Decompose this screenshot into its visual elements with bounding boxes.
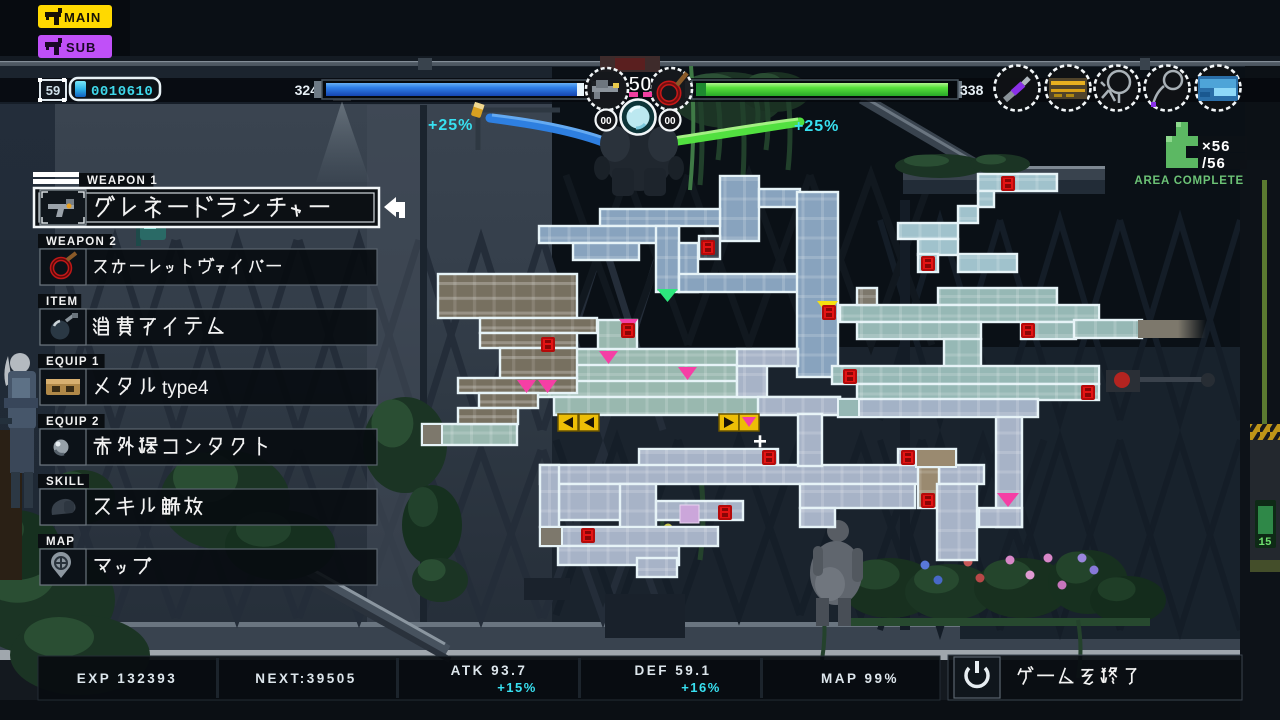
svg-text:WEAPON 1: WEAPON 1 — [87, 175, 158, 187]
svg-text:ITEM: ITEM — [46, 296, 78, 308]
svg-text:+15%: +15% — [497, 680, 537, 695]
svg-text:WEAPON 2: WEAPON 2 — [46, 236, 117, 248]
svg-text:+25%: +25% — [428, 117, 473, 134]
svg-text:DEF 59.1: DEF 59.1 — [634, 663, 711, 678]
svg-text:15: 15 — [1258, 537, 1272, 549]
svg-text:MAIN: MAIN — [64, 10, 101, 25]
svg-text:59: 59 — [46, 83, 60, 98]
svg-text:AREA COMPLETE: AREA COMPLETE — [1134, 175, 1244, 187]
svg-text:338: 338 — [960, 82, 984, 98]
svg-text:×56: ×56 — [1202, 138, 1230, 155]
svg-text:EQUIP 1: EQUIP 1 — [46, 356, 100, 368]
svg-text:EXP 132393: EXP 132393 — [77, 671, 178, 686]
svg-text:+25%: +25% — [794, 118, 839, 135]
svg-text:0010610: 0010610 — [91, 84, 153, 100]
svg-text:NEXT:39505: NEXT:39505 — [255, 671, 357, 686]
svg-text:SUB: SUB — [66, 40, 96, 55]
svg-text:00: 00 — [600, 116, 612, 127]
svg-text:MAP 99%: MAP 99% — [821, 671, 899, 686]
svg-text:+16%: +16% — [681, 680, 721, 695]
svg-text:type4: type4 — [162, 378, 209, 399]
svg-text:SKILL: SKILL — [46, 476, 85, 488]
svg-text:ATK 93.7: ATK 93.7 — [451, 663, 528, 678]
svg-text:00: 00 — [664, 116, 676, 127]
svg-text:EQUIP 2: EQUIP 2 — [46, 416, 100, 428]
svg-text:/56: /56 — [1202, 155, 1226, 172]
svg-text:MAP: MAP — [46, 536, 75, 548]
